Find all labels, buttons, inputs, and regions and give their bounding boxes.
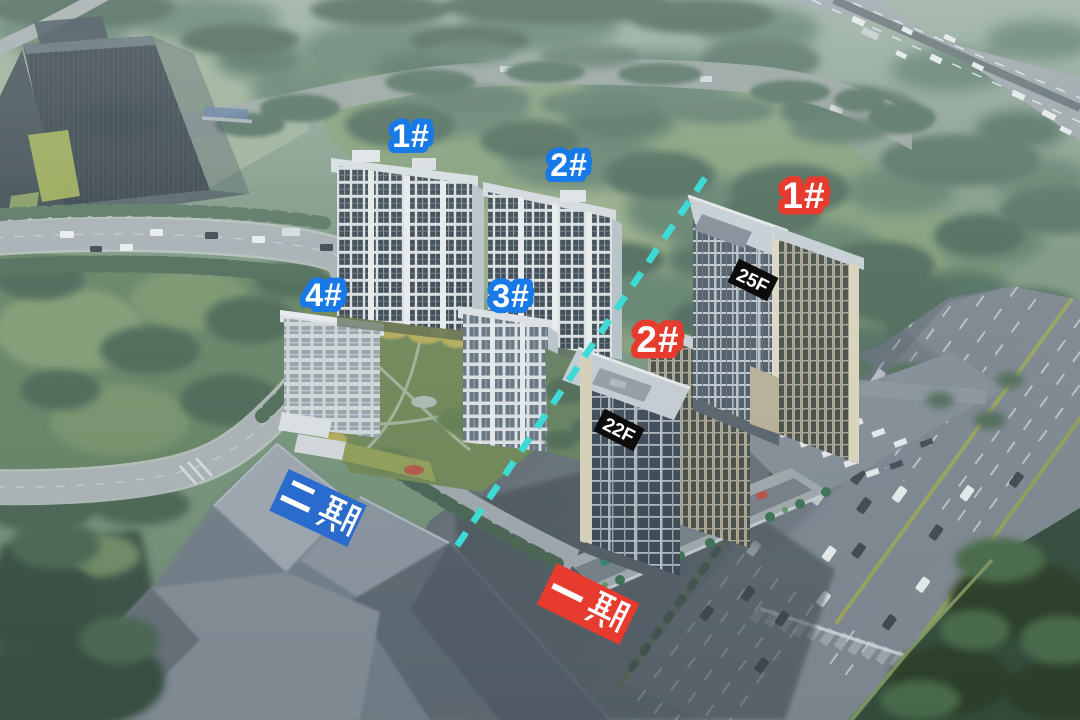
svg-text:2#: 2#: [550, 147, 588, 183]
svg-text:4#: 4#: [305, 277, 343, 313]
svg-text:2#: 2#: [636, 319, 679, 360]
svg-text:1#: 1#: [392, 118, 430, 154]
svg-text:3#: 3#: [492, 278, 530, 314]
svg-text:1#: 1#: [782, 175, 825, 216]
